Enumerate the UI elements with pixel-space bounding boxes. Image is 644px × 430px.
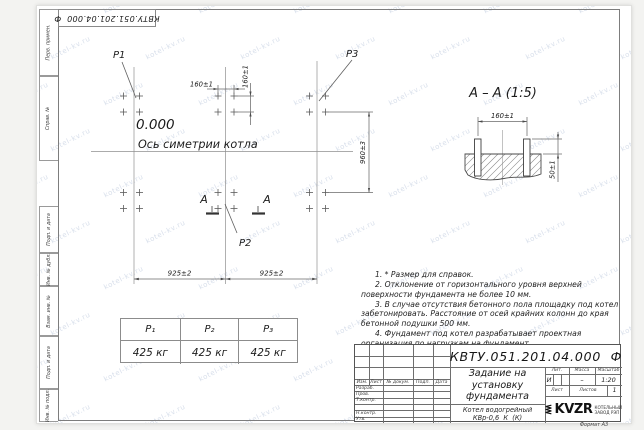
tb-lit-label: Лит.: [545, 367, 569, 374]
table-header-p3: P₃: [238, 319, 297, 341]
side-label: Перв. примен.: [47, 24, 52, 60]
load-label-p2: P2: [239, 238, 251, 249]
side-label: Инв. № дубл.: [47, 253, 52, 286]
dim-label-section-50: 50±1: [549, 160, 557, 179]
tb-sheets-label: Листов: [569, 385, 607, 396]
top-stamp-doc-number: КВТУ.051.201.04.000 Ф: [54, 14, 160, 23]
tb-sheet-label: Лист: [545, 385, 569, 396]
tb-row-tkontr: Т.контр.: [356, 398, 383, 404]
section-cut-marks: А А: [199, 193, 271, 214]
table-header-p1: P₁: [121, 319, 180, 341]
tb-product-line: Котел водогрейный: [463, 406, 532, 414]
tb-col-podp: Подп.: [413, 379, 433, 385]
anchor-bolt-marks: [120, 93, 329, 213]
section-letter-right: А: [262, 193, 271, 206]
tb-col-dokum: № докум.: [383, 379, 413, 385]
tb-col-data: Дата: [433, 379, 450, 385]
dim-label-925b: 925±2: [260, 270, 284, 278]
kvzr-caption-line: ЗАВОД РЭП: [595, 410, 622, 415]
anchor-bolt-right: [524, 139, 531, 176]
note-1: 1. * Размер для справок.: [361, 270, 633, 280]
tb-mass-value: –: [569, 374, 595, 385]
watermark-text: kotel-kv.ru: [620, 127, 631, 154]
tb-scale-label: Масштаб: [595, 367, 622, 374]
tb-product: Котел водогрейный КВр-0,6 К (К): [450, 404, 545, 423]
tb-doc-number: КВТУ.051.201.04.000 Ф: [450, 345, 622, 367]
section-detail: 160±1 50±1: [431, 112, 562, 186]
side-label: Взам. инв. №: [47, 295, 52, 328]
section-letter-left: А: [199, 193, 208, 206]
drawing-sheet: kotel-kv.rukotel-kv.rukotel-kv.rukotel-k…: [36, 5, 632, 424]
top-stamp-cell: КВТУ.051.201.04.000 Ф: [58, 9, 156, 27]
side-label: Инв. № подл.: [47, 389, 52, 422]
kvzr-logo-text: KVZR: [555, 402, 593, 417]
elevation-mark: 0.000: [136, 117, 175, 133]
dim-label-160v: 160±1: [242, 65, 250, 88]
kvzr-logo-caption: КОТЕЛЬНЫЙ ЗАВОД РЭП: [595, 405, 622, 415]
title-block: Изм. Лист № докум. Подп. Дата Разраб. Пр…: [354, 344, 621, 422]
tb-title-line: установку: [472, 380, 523, 392]
plan-axis-lines: [91, 61, 353, 284]
side-cell-inv-dubl: Инв. № дубл.: [39, 253, 58, 286]
side-label: Подп. и дата: [47, 346, 52, 379]
tb-row-utv: Утв.: [356, 417, 383, 423]
boiler-axis-label: Ось симетрии котла: [138, 138, 258, 151]
anchor-bolt-left: [475, 139, 482, 176]
side-cell-sprav-n: Справ. №: [39, 76, 58, 161]
watermark-text: kotel-kv.ru: [37, 173, 50, 200]
dim-160-horizontal: 160±1: [190, 81, 245, 95]
format-label: Формат А3: [564, 422, 624, 428]
side-cell-vzam-inv: Взам. инв. №: [39, 286, 58, 336]
tb-scale-value: 1:20: [595, 374, 622, 385]
tb-sheets-value: 1: [607, 385, 622, 396]
dim-label-960: 960±3: [359, 141, 367, 164]
dim-label-925a: 925±2: [168, 270, 192, 278]
watermark-text: kotel-kv.ru: [620, 219, 631, 246]
note-3: 3. В случае отсутствия бетонного пола пл…: [361, 300, 633, 330]
page: { "watermark": { "text": "kotel-kv.ru" }…: [0, 0, 644, 430]
load-label-p1: P1: [113, 50, 125, 61]
notes-block: 1. * Размер для справок. 2. Отклонение о…: [361, 270, 633, 349]
watermark-text: kotel-kv.ru: [620, 35, 631, 62]
tb-mass-label: Масса: [569, 367, 595, 374]
side-cell-inv-podl: Инв. № подл.: [39, 389, 58, 422]
tb-title: Задание на установку фундамента: [450, 367, 545, 404]
side-cell-podp-data-1: Подп. и дата: [39, 206, 58, 253]
tb-lit-value: И: [545, 374, 553, 385]
tb-product-line: КВр-0,6 К (К): [473, 414, 522, 422]
dim-160-vertical: 160±1: [237, 65, 254, 125]
table-value-p2: 425 кг: [180, 341, 239, 364]
note-2: 2. Отклонение от горизонтального уровня …: [361, 280, 633, 300]
table-value-p3: 425 кг: [238, 341, 297, 364]
dim-960: 960±3: [329, 112, 373, 193]
section-view-title: А – А (1:5): [468, 86, 537, 101]
dim-label-160h: 160±1: [190, 81, 213, 89]
table-value-p1: 425 кг: [121, 341, 180, 364]
load-weight-table: P₁ P₂ P₃ 425 кг 425 кг 425 кг: [120, 318, 298, 363]
side-label: Подп. и дата: [47, 213, 52, 246]
kvzr-spring-icon: [545, 401, 553, 418]
tb-title-line: фундамента: [466, 391, 529, 403]
tb-title-line: Задание на: [469, 368, 527, 380]
load-label-p3: P3: [346, 49, 358, 60]
side-label: Справ. №: [47, 107, 52, 130]
dim-label-section-160: 160±1: [491, 112, 514, 120]
side-cell-podp-data-2: Подп. и дата: [39, 336, 58, 389]
tb-logo-cell: KVZR КОТЕЛЬНЫЙ ЗАВОД РЭП: [545, 396, 622, 423]
table-header-p2: P₂: [180, 319, 239, 341]
